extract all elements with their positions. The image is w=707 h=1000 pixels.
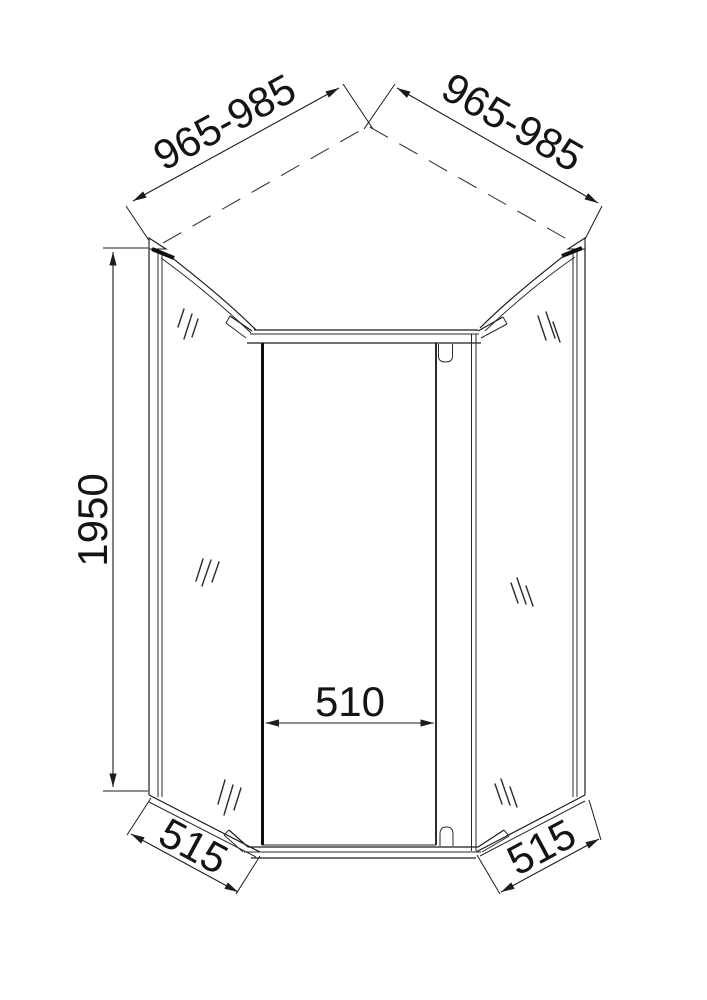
dimension-label-door-width: 510 [315, 678, 385, 725]
right-side-panel [476, 238, 585, 856]
dimension-label-height: 1950 [69, 473, 116, 566]
door-top-roller [439, 344, 453, 362]
dimension-bottom-right-side: 515 [477, 800, 601, 894]
technical-drawing-page: 965-985 965-985 1950 [0, 0, 707, 1000]
shower-enclosure-elevation-drawing: 965-985 965-985 1950 [0, 0, 707, 1000]
dimension-label-bottom-left: 515 [152, 809, 236, 884]
left-side-panel [149, 238, 260, 857]
dimension-label-bottom-right: 515 [499, 810, 583, 885]
bottom-sill [224, 830, 509, 858]
glass-hatch-icon [196, 559, 219, 586]
dimension-bottom-left-side: 515 [127, 798, 260, 894]
glass-hatch-icon [218, 780, 241, 815]
glass-hatch-icon [495, 779, 517, 807]
dimension-label-top-right: 965-985 [434, 63, 591, 181]
center-frame-post [472, 334, 477, 851]
right-wall-bracket [568, 238, 585, 249]
glass-hatch-icon [538, 312, 560, 342]
glass-hatch-icon [511, 578, 533, 606]
sliding-door-panel [263, 343, 454, 846]
left-wall-bracket [149, 238, 166, 249]
dimension-height: 1950 [69, 248, 148, 791]
dimension-label-top-left: 965-985 [145, 65, 303, 180]
door-bottom-guide [440, 827, 453, 846]
dimension-top-left-width: 965-985 [126, 65, 373, 245]
dimension-top-right-width: 965-985 [364, 63, 602, 247]
dimension-door-width: 510 [266, 678, 435, 725]
header-rail [226, 316, 507, 343]
glass-hatch-icon [178, 309, 198, 339]
